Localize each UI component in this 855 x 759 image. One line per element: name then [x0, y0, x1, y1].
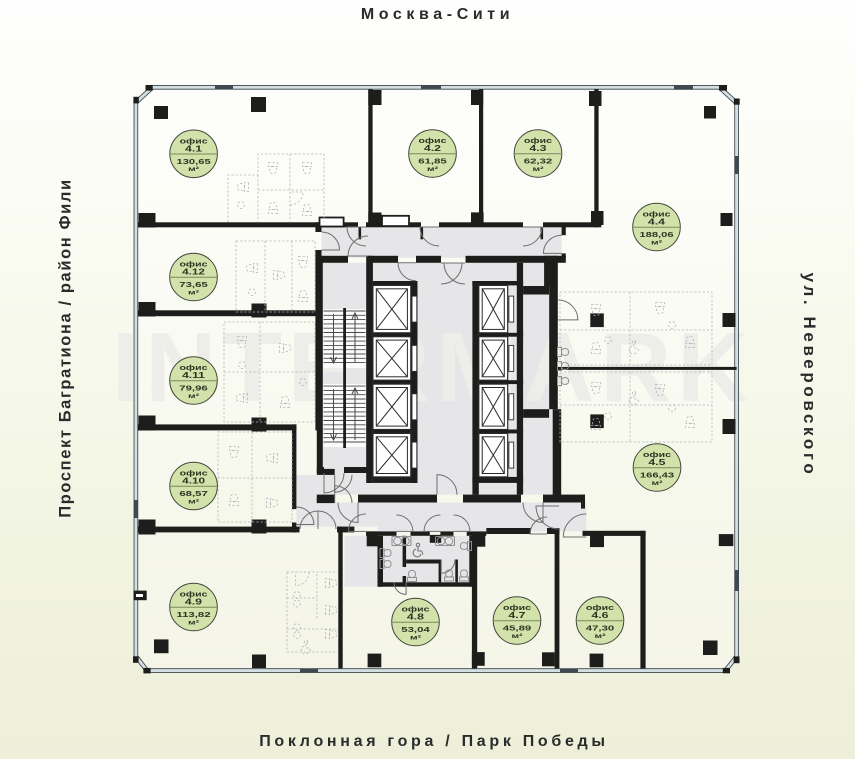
svg-text:м²: м² [188, 498, 200, 505]
svg-text:Москва-Сити: Москва-Сити [361, 6, 514, 23]
svg-text:188,06: 188,06 [639, 230, 673, 239]
svg-text:45,89: 45,89 [503, 624, 532, 633]
svg-text:130,65: 130,65 [177, 157, 212, 166]
svg-text:м²: м² [533, 166, 545, 173]
svg-text:4.11: 4.11 [182, 371, 206, 380]
svg-text:62,32: 62,32 [524, 157, 553, 166]
svg-text:4.8: 4.8 [407, 613, 425, 622]
svg-text:4.2: 4.2 [424, 144, 442, 153]
svg-text:53,04: 53,04 [401, 625, 431, 634]
svg-text:4.3: 4.3 [529, 144, 547, 153]
svg-text:4.6: 4.6 [591, 611, 609, 620]
svg-text:м²: м² [652, 480, 664, 487]
svg-text:79,96: 79,96 [179, 384, 208, 393]
svg-text:166,43: 166,43 [640, 471, 674, 480]
svg-text:4.9: 4.9 [185, 598, 203, 607]
svg-text:м²: м² [410, 634, 422, 641]
svg-text:ул. Неверовского: ул. Неверовского [800, 273, 819, 478]
svg-text:м²: м² [188, 393, 200, 400]
svg-text:61,85: 61,85 [418, 157, 448, 166]
svg-text:73,65: 73,65 [179, 280, 209, 289]
svg-text:Поклонная гора / Парк Победы: Поклонная гора / Парк Победы [259, 733, 609, 750]
svg-text:47,30: 47,30 [586, 624, 615, 633]
svg-text:4.1: 4.1 [185, 144, 203, 153]
svg-text:4.7: 4.7 [508, 611, 526, 620]
svg-text:4.4: 4.4 [648, 218, 666, 227]
svg-text:4.5: 4.5 [648, 458, 666, 467]
svg-text:м²: м² [188, 166, 200, 173]
svg-text:м²: м² [188, 289, 200, 296]
svg-text:м²: м² [427, 166, 439, 173]
svg-text:4.10: 4.10 [182, 477, 206, 486]
svg-text:м²: м² [595, 633, 607, 640]
svg-text:4.12: 4.12 [182, 268, 206, 277]
svg-text:м²: м² [188, 619, 200, 626]
svg-text:м²: м² [512, 633, 524, 640]
svg-text:113,82: 113,82 [176, 610, 210, 619]
svg-text:Проспект Багратиона / район Фи: Проспект Багратиона / район Фили [57, 178, 75, 517]
svg-text:68,57: 68,57 [179, 489, 208, 498]
svg-text:м²: м² [651, 239, 663, 246]
